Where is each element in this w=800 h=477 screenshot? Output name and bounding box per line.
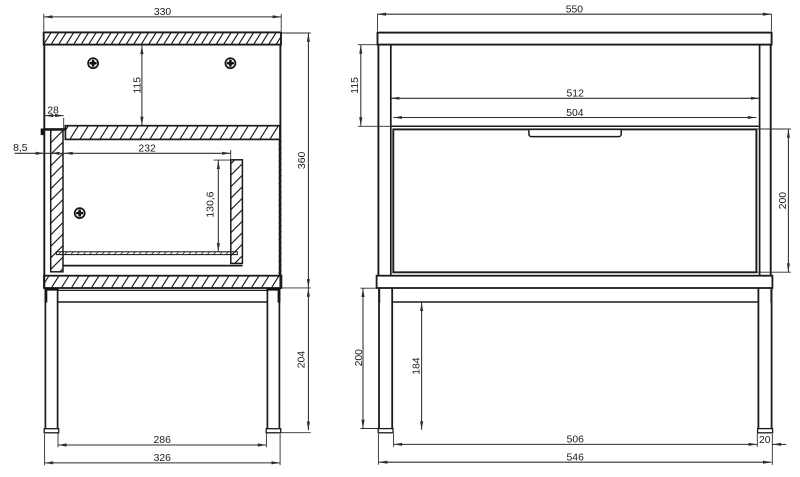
svg-text:330: 330 xyxy=(154,7,172,18)
svg-text:504: 504 xyxy=(566,108,584,119)
svg-text:130,6: 130,6 xyxy=(206,191,217,217)
svg-text:8,5: 8,5 xyxy=(13,143,28,154)
svg-text:20: 20 xyxy=(759,435,771,446)
svg-text:115: 115 xyxy=(350,77,361,94)
svg-text:360: 360 xyxy=(297,152,308,170)
svg-text:200: 200 xyxy=(778,192,789,210)
svg-text:512: 512 xyxy=(567,89,585,100)
svg-text:326: 326 xyxy=(154,453,172,464)
svg-text:232: 232 xyxy=(138,144,156,155)
svg-text:204: 204 xyxy=(297,351,308,369)
svg-text:286: 286 xyxy=(154,435,172,446)
svg-text:546: 546 xyxy=(567,453,585,464)
svg-text:550: 550 xyxy=(566,4,584,15)
svg-text:200: 200 xyxy=(354,349,365,367)
svg-text:28: 28 xyxy=(47,106,59,117)
svg-text:184: 184 xyxy=(411,357,422,375)
svg-text:115: 115 xyxy=(133,77,144,94)
svg-text:506: 506 xyxy=(567,435,585,446)
